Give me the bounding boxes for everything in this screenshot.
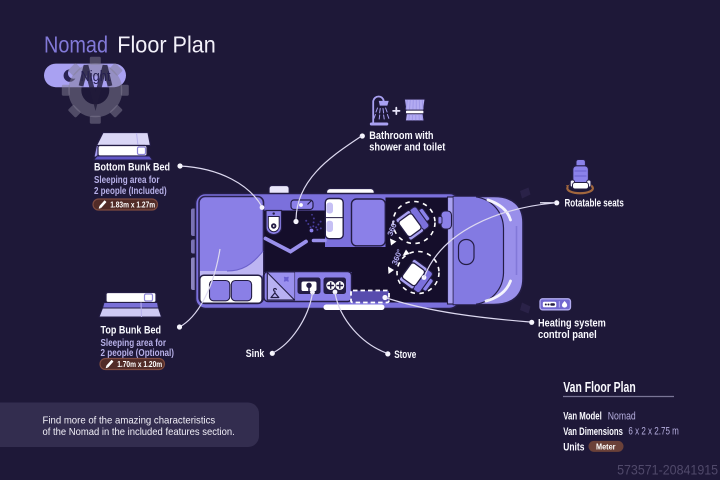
svg-text:573571-20841915: 573571-20841915 (617, 463, 718, 478)
svg-text:Meter: Meter (596, 442, 616, 451)
svg-text:Stove: Stove (394, 349, 416, 361)
svg-text:Van Model: Van Model (563, 411, 602, 423)
svg-text:2 people (Included): 2 people (Included) (94, 186, 167, 197)
svg-text:Floor Plan: Floor Plan (117, 32, 216, 58)
svg-text:Top Bunk Bed: Top Bunk Bed (101, 325, 162, 337)
svg-text:Heating system: Heating system (538, 317, 606, 329)
svg-text:1.70m x 1.20m: 1.70m x 1.20m (117, 359, 162, 369)
svg-text:Units: Units (563, 441, 584, 453)
svg-text:1.83m x 1.27m: 1.83m x 1.27m (110, 200, 155, 210)
svg-text:Find more of the amazing chara: Find more of the amazing characteristics (43, 415, 216, 427)
svg-text:of the Nomad in the included f: of the Nomad in the included features se… (43, 426, 235, 438)
svg-text:Sleeping area for: Sleeping area for (101, 338, 167, 349)
svg-text:2 people (Optional): 2 people (Optional) (101, 348, 175, 359)
svg-text:Van Dimensions: Van Dimensions (563, 426, 623, 438)
svg-text:Bathroom with: Bathroom with (369, 130, 433, 142)
svg-text:Bottom Bunk Bed: Bottom Bunk Bed (94, 162, 170, 174)
svg-text:Sleeping area for: Sleeping area for (94, 175, 160, 186)
svg-text:Sink: Sink (246, 348, 265, 360)
svg-text:Nomad: Nomad (608, 411, 636, 423)
svg-text:Van Floor Plan: Van Floor Plan (563, 380, 635, 396)
svg-text:Night: Night (81, 68, 112, 85)
svg-text:shower and toilet: shower and toilet (369, 142, 445, 154)
svg-text:control panel: control panel (538, 329, 597, 341)
svg-text:Nomad: Nomad (44, 32, 108, 58)
svg-text:Rotatable seats: Rotatable seats (565, 198, 624, 210)
svg-text:6 x 2 x 2.75 m: 6 x 2 x 2.75 m (628, 426, 679, 438)
